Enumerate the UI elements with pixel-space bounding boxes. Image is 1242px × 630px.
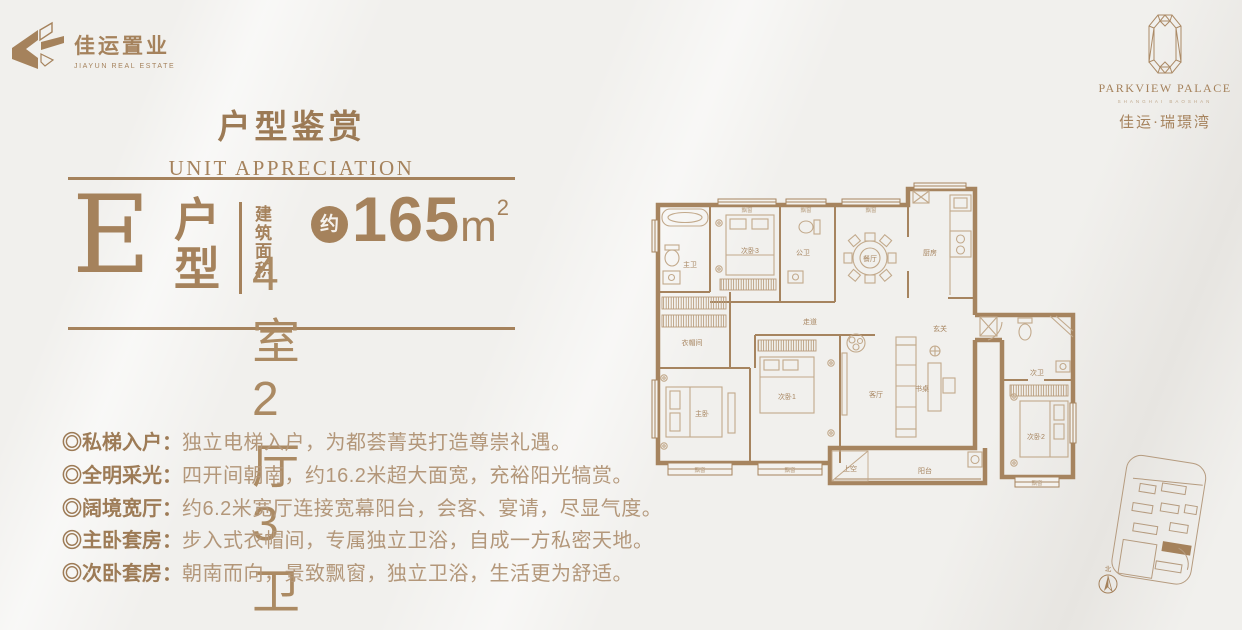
unit-type-char1: 户	[174, 196, 220, 245]
bathtub	[662, 209, 708, 226]
bed	[760, 357, 814, 413]
room-label: 餐厅	[863, 254, 877, 263]
approx-badge: 约	[311, 206, 348, 243]
tv-bench	[842, 353, 847, 415]
page-title: 户型鉴赏 UNIT APPRECIATION	[68, 100, 515, 181]
room-label: 阳台	[918, 466, 932, 475]
site-plan: 北	[1090, 447, 1230, 607]
unit-type-char2: 型	[174, 245, 220, 294]
room-label: 客厅	[869, 390, 883, 399]
project-name-en: PARKVIEW PALACE	[1095, 81, 1235, 96]
brand-name-cn: 佳运置业	[74, 30, 175, 60]
toilet	[814, 220, 820, 234]
sofa	[896, 345, 916, 429]
room-label: 次卧1	[778, 392, 796, 401]
page-title-cn: 户型鉴赏	[68, 100, 515, 148]
feature-label: ◎主卧套房：	[62, 530, 182, 552]
kitchen-sink	[950, 195, 971, 211]
bed	[1020, 401, 1068, 457]
feature-text: 四开间朝南，约16.2米超大面宽，充裕阳光犒赏。	[182, 465, 633, 487]
bay-window-label: 飘窗	[800, 206, 812, 214]
desk-chair	[943, 378, 955, 393]
feature-label: ◎阔境宽厅：	[62, 498, 182, 520]
bay-window-label: 飘窗	[1031, 479, 1043, 487]
highlighted-building	[1162, 542, 1191, 555]
feature-text: 步入式衣帽间，专属独立卫浴，自成一方私密天地。	[182, 530, 654, 552]
sink	[788, 271, 803, 283]
feature-text: 朝南而向，景致飘窗，独立卫浴，生活更为舒适。	[182, 563, 633, 585]
washer	[968, 452, 982, 467]
brand-name-en: JIAYUN REAL ESTATE	[74, 63, 175, 70]
room-label: 上空	[843, 464, 857, 473]
bed	[666, 387, 722, 437]
gem-icon	[1145, 14, 1185, 74]
desk	[928, 363, 941, 411]
toilet	[1018, 318, 1032, 323]
room-label: 书桌	[915, 384, 929, 393]
interior-walls	[658, 205, 1073, 463]
bed	[726, 215, 774, 275]
feature-label: ◎私梯入户：	[62, 432, 182, 454]
unit-area-sup: 2	[497, 195, 510, 220]
bay-window-label: 飘窗	[784, 466, 796, 474]
feature-label: ◎全明采光：	[62, 465, 182, 487]
unit-area-value: 165m2	[352, 184, 510, 256]
toilet	[665, 245, 679, 250]
bay-window-label: 飘窗	[694, 466, 706, 474]
room-label: 主卫	[683, 260, 697, 269]
bay-window-label: 飘窗	[741, 206, 753, 214]
unit-letter: E	[72, 182, 151, 290]
feature-item: ◎全明采光：四开间朝南，约16.2米超大面宽，充裕阳光犒赏。	[62, 460, 662, 493]
room-label: 玄关	[933, 324, 947, 333]
compass-needle	[1104, 576, 1108, 591]
feature-text: 约6.2米宽厅连接宽幕阳台，会客、宴请，尽显气度。	[182, 498, 662, 520]
project-subtitle-en: SHANGHAI BAOSHAN	[1095, 99, 1235, 104]
room-label: 公卫	[796, 249, 810, 257]
site-parcel	[1110, 453, 1208, 586]
unit-type-label: 户 型	[174, 196, 220, 294]
feature-text: 独立电梯入户，为都荟菁英打造尊崇礼遇。	[182, 432, 572, 454]
room-label: 衣帽间	[682, 338, 703, 347]
feature-list: ◎私梯入户：独立电梯入户，为都荟菁英打造尊崇礼遇。 ◎全明采光：四开间朝南，约1…	[62, 427, 662, 591]
unit-area-label-line1: 建筑	[255, 206, 272, 243]
room-label: 主卧	[695, 409, 709, 418]
project-logo: PARKVIEW PALACE SHANGHAI BAOSHAN 佳运·瑞璟湾	[1095, 14, 1235, 132]
room-label: 次卫	[1030, 368, 1044, 377]
unit-area-unit: m	[460, 202, 497, 251]
unit-vertical-divider	[239, 202, 242, 294]
room-label: 走道	[803, 317, 817, 326]
feature-item: ◎私梯入户：独立电梯入户，为都荟菁英打造尊崇礼遇。	[62, 427, 662, 460]
feature-item: ◎次卧套房：朝南而向，景致飘窗，独立卫浴，生活更为舒适。	[62, 558, 662, 591]
feature-item: ◎阔境宽厅：约6.2米宽厅连接宽幕阳台，会客、宴请，尽显气度。	[62, 493, 662, 526]
room-label: 次卧2	[1027, 432, 1045, 441]
shower	[1050, 316, 1073, 337]
room-label: 厨房	[923, 248, 937, 257]
brand-logo-icon	[8, 14, 66, 76]
sink	[1056, 361, 1070, 372]
bay-window-label: 飘窗	[865, 206, 877, 214]
feature-label: ◎次卧套房：	[62, 563, 182, 585]
compass-north-label: 北	[1105, 565, 1112, 573]
brand-logo: 佳运置业 JIAYUN REAL ESTATE	[8, 14, 175, 76]
wardrobes	[662, 279, 1068, 396]
bench	[728, 393, 735, 433]
floor-plan: 主卫 次卧3 公卫 餐厅 厨房 玄关 走道 衣帽间 主卧 次卧1 客厅 书桌 阳…	[630, 175, 1100, 505]
sink	[663, 271, 680, 284]
project-name-cn: 佳运·瑞璟湾	[1095, 111, 1235, 132]
room-label: 次卧3	[741, 246, 759, 255]
feature-item: ◎主卧套房：步入式衣帽间，专属独立卫浴，自成一方私密天地。	[62, 525, 662, 558]
